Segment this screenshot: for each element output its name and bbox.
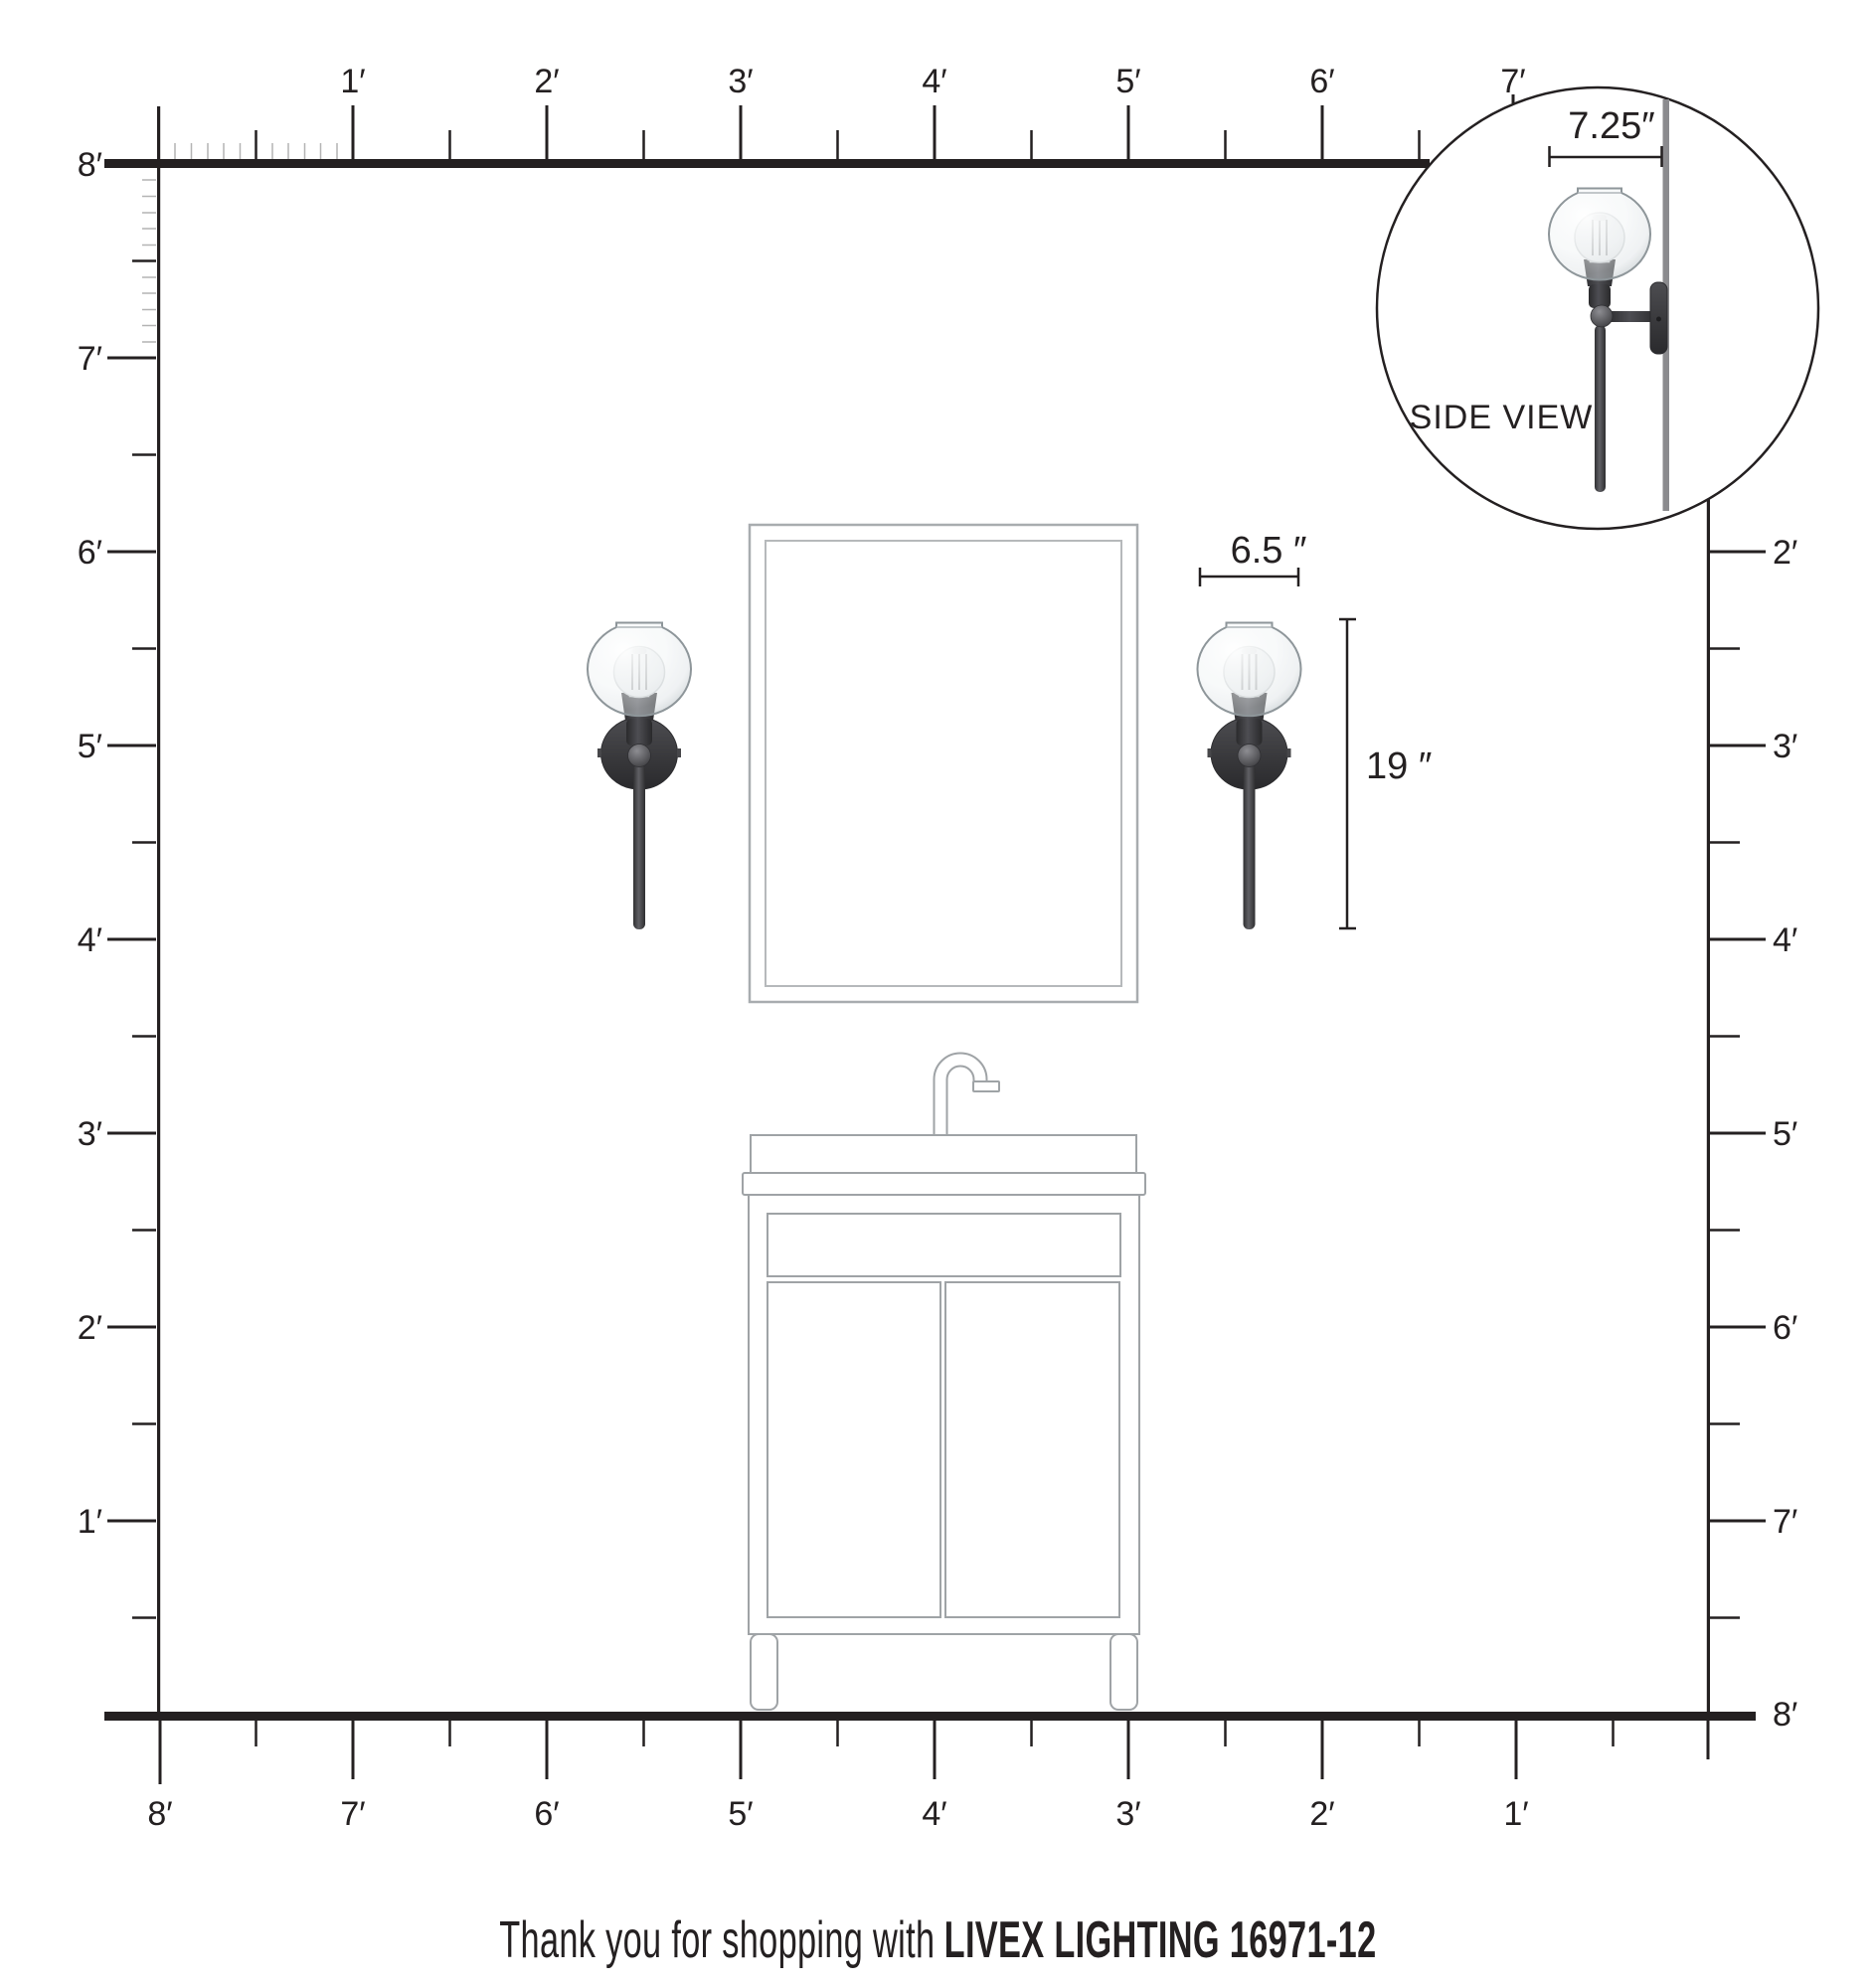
top-ruler-label: 6′ — [1309, 63, 1334, 100]
bottom-ruler-label: 4′ — [922, 1795, 946, 1833]
bottom-ruler: 8′ 7′ 6′ 5′ 4′ 3′ 2′ 1′ — [104, 1712, 1756, 1833]
right-ruler: 2′ 3′ 4′ 5′ 6′ 7′ 8′ — [1707, 497, 1797, 1734]
bottom-ruler-label: 5′ — [728, 1795, 753, 1833]
right-sconce — [1198, 623, 1301, 930]
width-dim-label: 6.5 ″ — [1231, 530, 1307, 572]
footer-text: Thank you for shopping withLIVEX LIGHTIN… — [499, 1910, 1376, 1970]
top-ruler-label: 2′ — [534, 63, 559, 100]
left-ruler: 8′ 7′ 6′ 5′ 4′ 3′ 2′ 1′ — [78, 106, 160, 1721]
top-ruler-label: 5′ — [1115, 63, 1140, 100]
left-ruler-label: 1′ — [78, 1503, 102, 1541]
left-ruler-label: 5′ — [78, 728, 102, 765]
left-ruler-label: 7′ — [78, 340, 102, 378]
top-ruler-label: 3′ — [728, 63, 753, 100]
top-ruler-line — [104, 159, 1430, 168]
vanity-right-leg — [1110, 1634, 1137, 1710]
top-half-foot-ticks — [256, 130, 1420, 159]
left-foot-ticks — [107, 358, 156, 1521]
right-ruler-line — [1707, 497, 1710, 1721]
left-ruler-line — [157, 106, 160, 1721]
vanity-left-door — [767, 1282, 940, 1617]
right-ruler-label: 4′ — [1773, 921, 1797, 959]
right-ruler-label: 5′ — [1773, 1115, 1797, 1153]
height-dimension: 19 ″ — [1339, 619, 1432, 928]
bottom-ruler-label: 1′ — [1503, 1795, 1528, 1833]
product-dimension-diagram: 1′ 2′ 3′ 4′ 5′ 6′ 7′ 8′ 7′ 6′ 5′ 4′ 3′ 2… — [0, 0, 1875, 1988]
top-ruler-label: 4′ — [922, 63, 946, 100]
width-dimension: 6.5 ″ — [1199, 530, 1306, 586]
left-ruler-label: 3′ — [78, 1115, 102, 1153]
left-ruler-label: 2′ — [78, 1309, 102, 1347]
right-ruler-label: 6′ — [1773, 1309, 1797, 1347]
bottom-ruler-label: 2′ — [1309, 1795, 1334, 1833]
left-ruler-label: 4′ — [78, 921, 102, 959]
footer-prefix: Thank you for shopping with — [499, 1911, 935, 1969]
left-ruler-label: 6′ — [78, 534, 102, 572]
vanity-backsplash — [751, 1135, 1136, 1173]
right-ruler-label: 7′ — [1773, 1503, 1797, 1541]
left-ruler-label: 8′ — [78, 146, 102, 184]
side-view-label: SIDE VIEW — [1410, 399, 1594, 436]
side-view-inset: 7.25″ SIDE VIEW — [1377, 87, 1818, 529]
vanity-countertop — [743, 1173, 1145, 1195]
vanity-drawer-panel — [767, 1214, 1120, 1276]
right-ruler-label: 8′ — [1773, 1696, 1797, 1734]
bottom-ruler-label: 7′ — [340, 1795, 365, 1833]
right-ruler-label: 3′ — [1773, 728, 1797, 765]
bottom-ruler-label: 8′ — [147, 1795, 172, 1833]
vanity-right-door — [945, 1282, 1119, 1617]
height-dim-label: 19 ″ — [1366, 745, 1432, 787]
top-ruler: 1′ 2′ 3′ 4′ 5′ 6′ 7′ — [104, 63, 1526, 168]
footer-brand: LIVEX LIGHTING 16971-12 — [943, 1911, 1376, 1969]
bottom-ruler-line — [104, 1712, 1756, 1721]
left-sconce — [588, 623, 691, 930]
bottom-ruler-label: 3′ — [1115, 1795, 1140, 1833]
right-ruler-label: 2′ — [1773, 534, 1797, 572]
bottom-ruler-label: 6′ — [534, 1795, 559, 1833]
top-ruler-label: 1′ — [340, 63, 365, 100]
mirror — [750, 525, 1137, 1002]
faucet-spout-tip — [973, 1081, 999, 1091]
top-ruler-label: 7′ — [1500, 63, 1525, 100]
footer: Thank you for shopping withLIVEX LIGHTIN… — [0, 1910, 1875, 1970]
inset-dim-label: 7.25″ — [1568, 105, 1654, 147]
vanity — [743, 1054, 1145, 1711]
vanity-left-leg — [751, 1634, 777, 1710]
mirror-outer-frame — [750, 525, 1137, 1002]
diagram-svg: 1′ 2′ 3′ 4′ 5′ 6′ 7′ 8′ 7′ 6′ 5′ 4′ 3′ 2… — [0, 0, 1875, 1988]
